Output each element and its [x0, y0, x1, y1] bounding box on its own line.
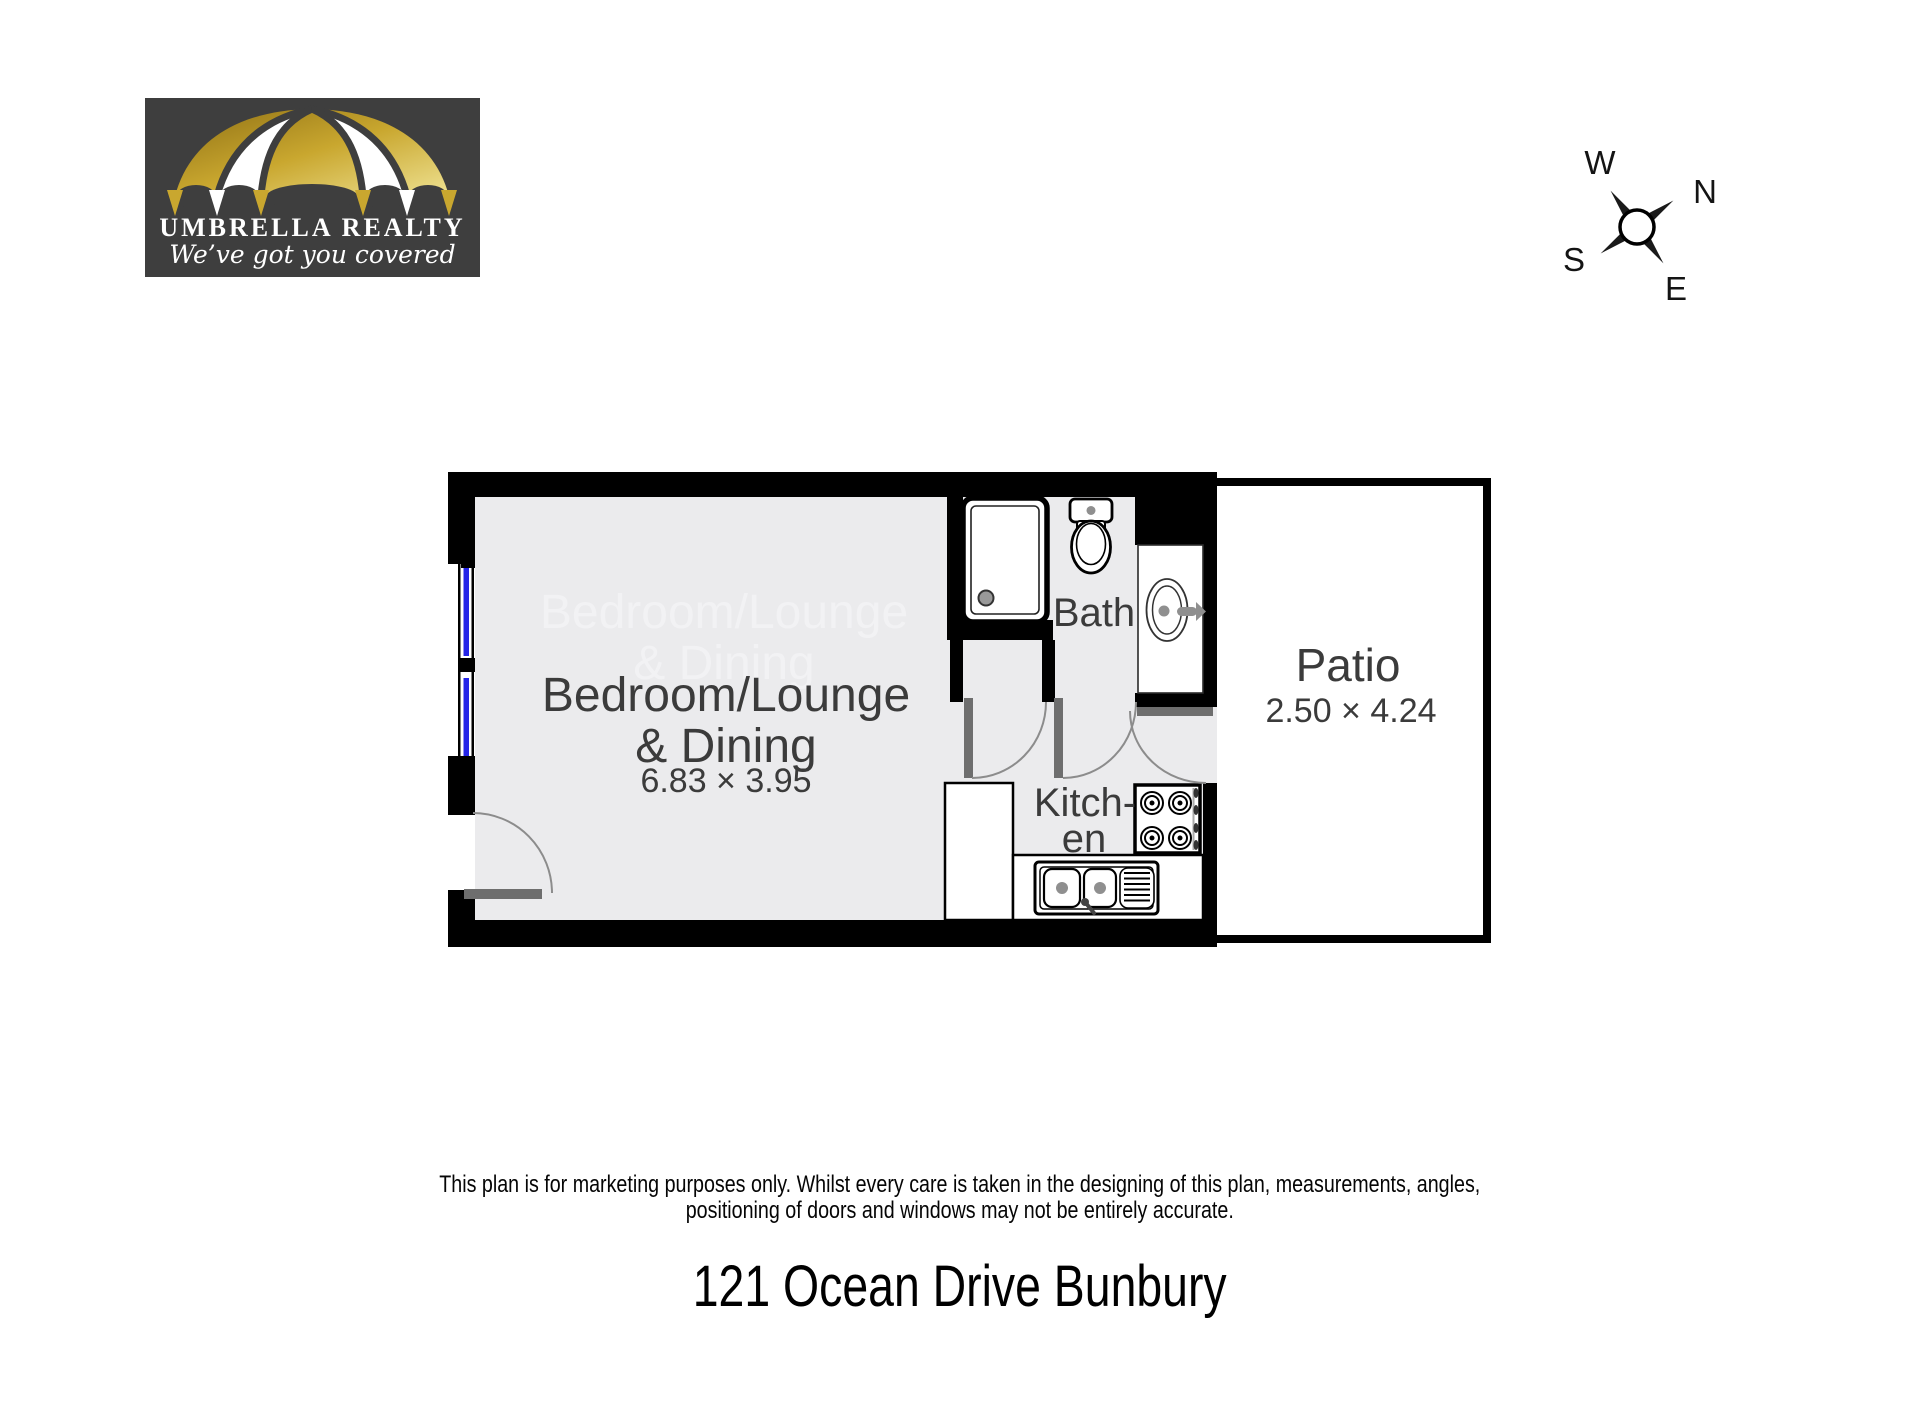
kitchen-sink-icon [1035, 862, 1158, 914]
compass-east-label: E [1665, 270, 1687, 307]
door-leaf [1054, 698, 1063, 778]
door-leaf [1137, 707, 1213, 716]
wall-segment [448, 472, 475, 564]
wall-segment [950, 640, 963, 702]
wall-segment [1203, 783, 1217, 947]
bath-label: Bath [1053, 591, 1135, 635]
toilet-icon [1070, 499, 1112, 573]
disclaimer: This plan is for marketing purposes only… [0, 1172, 1920, 1224]
compass-north-label: N [1693, 173, 1717, 210]
door-leaf [464, 889, 542, 899]
door-leaf [964, 698, 973, 778]
wall-segment [459, 658, 475, 672]
page: UMBRELLA REALTY We’ve got you covered Be… [0, 0, 1920, 1402]
wall-segment [1135, 472, 1217, 545]
wall-segment [448, 756, 475, 815]
bedroom-label-line1: Bedroom/Lounge [542, 669, 910, 722]
property-address-text: 121 Ocean Drive Bunbury [693, 1256, 1227, 1318]
compass-south-label: S [1563, 241, 1585, 278]
wall-segment [461, 558, 475, 568]
wall-segment [1135, 693, 1217, 707]
patio-doorway-floor [1203, 707, 1217, 783]
disclaimer-line1: This plan is for marketing purposes only… [439, 1172, 1480, 1198]
vanity-sink-icon [1138, 545, 1206, 693]
ghost-bedroom-label-line1: Bedroom/Lounge [540, 586, 908, 639]
wall-segment [448, 920, 1217, 947]
property-address-title: 121 Ocean Drive Bunbury [0, 1256, 1920, 1318]
kitchen-label-line2: en [1062, 817, 1107, 861]
patio-dimensions: 2.50 × 4.24 [1265, 692, 1436, 730]
entry-doorway [448, 813, 475, 891]
cooktop-icon [1135, 785, 1200, 853]
compass-west-label: W [1584, 144, 1616, 181]
patio-label: Patio [1296, 639, 1401, 691]
bedroom-dimensions: 6.83 × 3.95 [640, 762, 811, 800]
wall-segment [448, 472, 1217, 497]
disclaimer-line2: positioning of doors and windows may not… [439, 1198, 1480, 1224]
wall-segment [1042, 640, 1055, 702]
shower-icon [963, 498, 1047, 622]
